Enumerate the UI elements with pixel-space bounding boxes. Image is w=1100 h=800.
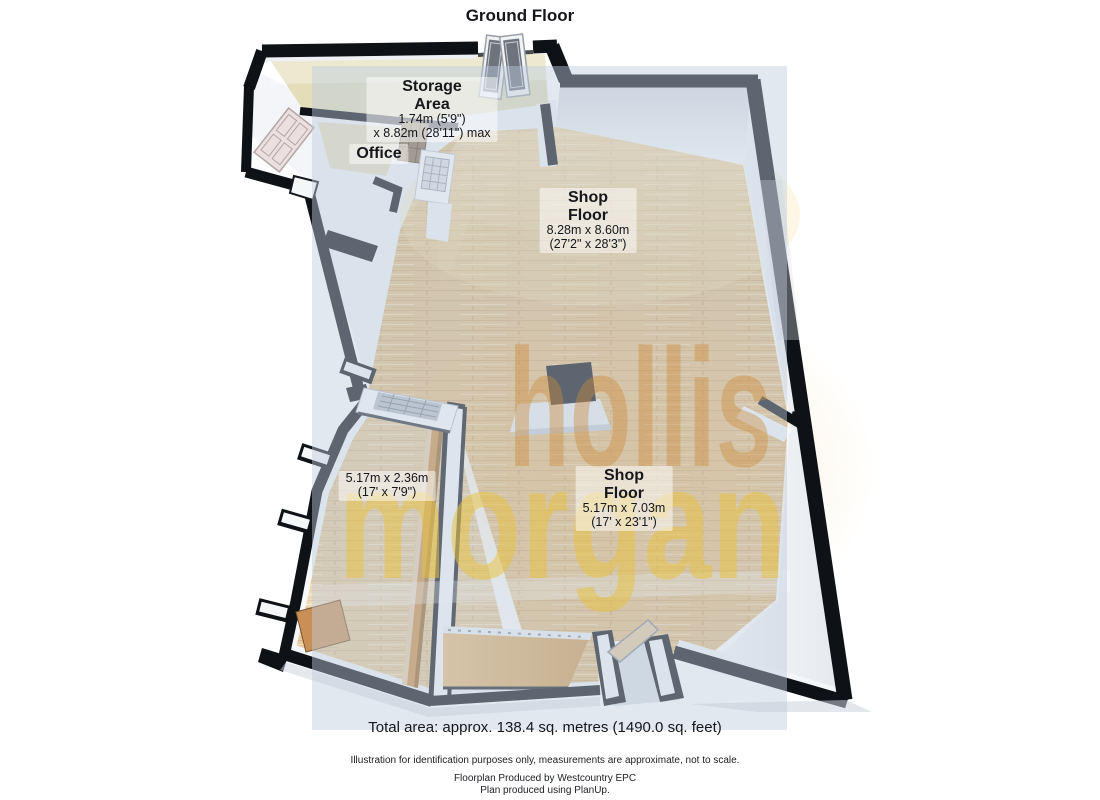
storage-area-label: Storage Area 1.74m (5'9") x 8.82m (28'11… [366,77,497,142]
office-name: Office [356,145,401,163]
total-area-text: Total area: approx. 138.4 sq. metres (14… [368,719,722,736]
shop-main-name-2: Floor [547,207,630,225]
storage-dim-2: x 8.82m (28'11") max [373,127,490,141]
corridor-dim-1: 5.17m x 2.36m [346,472,429,486]
shop-rear-dim-2: (17' x 23'1") [583,516,666,530]
shop-main-name-1: Shop [547,189,630,207]
office-label: Office [349,144,408,164]
software-text: Plan produced using PlanUp. [480,785,610,796]
shop-floor-main-label: Shop Floor 8.28m x 8.60m (27'2" x 28'3") [540,188,637,253]
watermark-text-layer: hollis morgan [0,0,1100,800]
disclaimer-text: Illustration for identification purposes… [351,755,740,766]
shop-floor-rear-label: Shop Floor 5.17m x 7.03m (17' x 23'1") [576,466,673,531]
storage-dim-1: 1.74m (5'9") [373,113,490,127]
shop-rear-dim-1: 5.17m x 7.03m [583,502,666,516]
shop-main-dim-2: (27'2" x 28'3") [547,238,630,252]
shop-rear-name-1: Shop [583,467,666,485]
corridor-label: 5.17m x 2.36m (17' x 7'9") [339,471,436,501]
floorplan-page: Ground Floor [0,0,1100,800]
corridor-dim-2: (17' x 7'9") [346,486,429,500]
produced-by-text: Floorplan Produced by Westcountry EPC [454,773,636,784]
shop-rear-name-2: Floor [583,485,666,503]
storage-name-2: Area [373,96,490,114]
shop-main-dim-1: 8.28m x 8.60m [547,224,630,238]
storage-name-1: Storage [373,78,490,96]
watermark-word-2: morgan [338,433,786,612]
